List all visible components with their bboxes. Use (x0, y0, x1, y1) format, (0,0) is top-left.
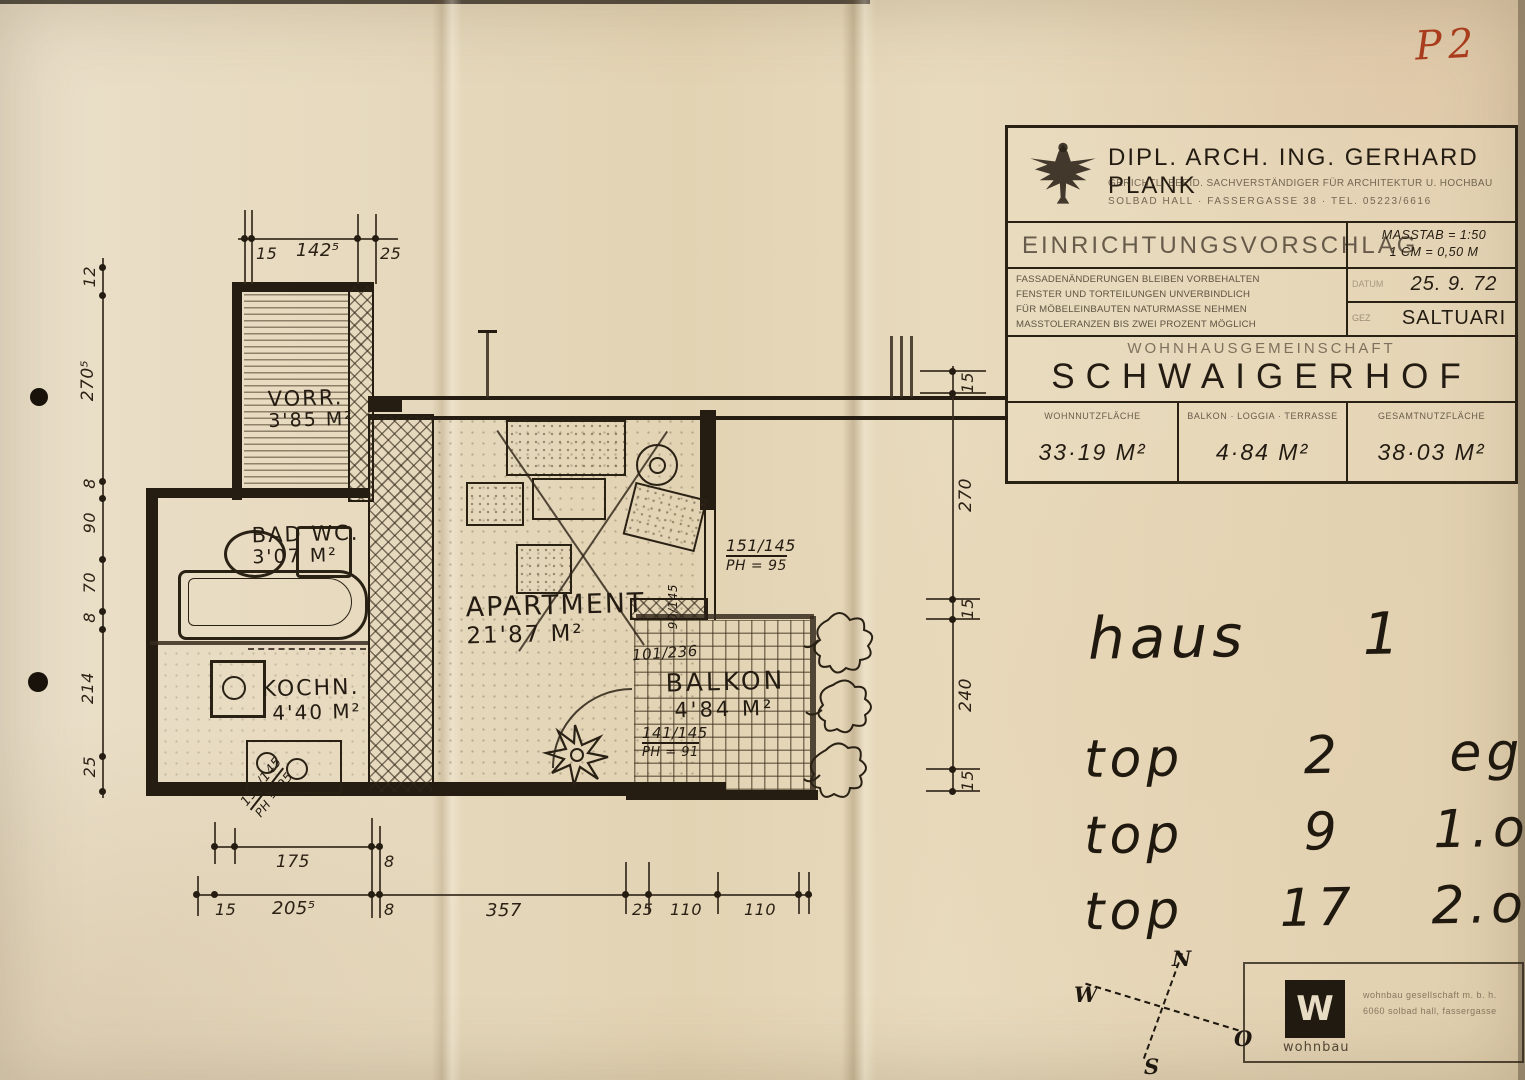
dim-right-2: 15 (958, 598, 977, 619)
dim-node (211, 891, 218, 898)
floor-lamp-inner (649, 457, 666, 474)
dim-node (949, 368, 956, 375)
notes-divider-h (1346, 301, 1515, 303)
dim-node (805, 891, 812, 898)
handwritten-top-row-1: top 2 eg. (1084, 722, 1525, 790)
note-line4: MASSTOLERANZEN BIS ZWEI PROZENT MÖGLICH (1016, 318, 1338, 333)
dim-bottom2-3: 357 (486, 900, 522, 921)
compass-north: N (1172, 946, 1191, 971)
gez-label: GEZ (1352, 313, 1371, 323)
haus-label: haus (1087, 602, 1247, 673)
annotation-window-151-size: 151/145 (726, 536, 796, 555)
punch-hole-top (30, 388, 48, 406)
top-num-3: 17 (1205, 878, 1356, 941)
wohnbau-logo: W (1285, 980, 1345, 1038)
top-num-2: 9 (1205, 802, 1342, 864)
wall-long-cap-left (368, 396, 402, 412)
area1-value: 33·19 M² (1008, 439, 1177, 466)
top-floor-1: eg. (1363, 722, 1525, 785)
haus-number: 1 (1270, 599, 1405, 669)
dim-guide-b4 (379, 826, 381, 918)
architect-name: DIPL. ARCH. ING. GERHARD PLANK (1108, 144, 1515, 200)
wohnbau-stamp-box: W wohnbau wohnbau gesellschaft m. b. h. … (1243, 962, 1524, 1063)
dim-node (645, 891, 652, 898)
wohnbau-address-line1: wohnbau gesellschaft m. b. h. (1363, 990, 1497, 1000)
dim-node (354, 235, 361, 242)
balkon-name: BALKON (665, 666, 785, 698)
dim-right-1: 270 (956, 478, 976, 512)
room-label-apartment: APARTMENT 21'87 M² (465, 588, 646, 650)
wohnbau-address-line2: 6060 solbad hall, fassergasse (1363, 1006, 1497, 1016)
dim-bottom2-6: 110 (744, 900, 776, 919)
punch-hole-bottom (28, 672, 48, 692)
dim-node (99, 626, 106, 633)
dim-node (99, 292, 106, 299)
room-label-balkon: BALKON 4'84 M² (665, 666, 786, 722)
dim-node (949, 390, 956, 397)
potted-plant (540, 715, 620, 795)
dim-node (949, 596, 956, 603)
dim-bottom2-5: 110 (670, 900, 702, 919)
scanned-floor-plan-sheet: P2 DIPL. ARCH. ING. GERHARD PLANK GERICH… (0, 0, 1525, 1080)
dim-guide-t3 (357, 214, 359, 284)
wohnbau-logo-letter: W (1296, 989, 1334, 1029)
wall-long-top (368, 396, 1008, 420)
annotation-window-151-ph: PH = 95 (726, 555, 787, 574)
page-mark: P2 (1414, 20, 1481, 69)
dim-bottom2-2: 8 (384, 900, 395, 919)
apartment-area: 21'87 M² (466, 619, 646, 650)
page-mark-text: P2 (1414, 20, 1481, 69)
balcony-slab-bottom (626, 790, 818, 800)
annotation-door-141: 141/145 PH = 91 (642, 724, 708, 760)
annotation-door-141-ph: PH = 91 (642, 742, 699, 760)
dim-node (949, 788, 956, 795)
dim-node (949, 766, 956, 773)
proposal-scale-divider (1346, 223, 1348, 267)
title-block-architect-row: DIPL. ARCH. ING. GERHARD PLANK GERICHTL.… (1008, 128, 1515, 223)
dim-node (714, 891, 721, 898)
dim-guide-b6 (625, 862, 627, 914)
top-num-1: 2 (1205, 726, 1342, 788)
dim-left-6: 214 (78, 672, 97, 704)
dim-top-2: 25 (380, 244, 401, 263)
top-word-3: top (1084, 881, 1185, 943)
dim-node (368, 843, 375, 850)
note-line3: FÜR MÖBELEINBAUTEN NATURMASSE NEHMEN (1016, 303, 1338, 318)
area1-label: WOHNNUTZFLÄCHE (1008, 411, 1177, 421)
dim-node (99, 264, 106, 271)
dim-top-1: 142⁵ (296, 240, 340, 261)
armchair-left (466, 482, 524, 526)
dim-guide-t4 (375, 214, 377, 284)
handwritten-haus: haus 1 (1087, 599, 1405, 673)
dim-node (193, 891, 200, 898)
wall-bad-kitchen-divider (150, 641, 368, 645)
fold-crease-right (842, 0, 876, 1080)
compass-west: W (1074, 982, 1098, 1007)
handwritten-top-row-3: top 17 2.og. (1084, 874, 1525, 943)
dim-bottom1-1: 8 (384, 852, 395, 871)
dim-node (211, 843, 218, 850)
dim-top-0: 15 (256, 244, 277, 263)
dim-line-left (102, 258, 104, 798)
dim-left-5: 8 (80, 612, 99, 623)
wall-vorr-left (232, 282, 242, 500)
wall-stub-chimney2 (900, 336, 903, 398)
area2-label: BALKON · LOGGIA · TERRASSE (1179, 411, 1346, 421)
area3-label: GESAMTNUTZFLÄCHE (1348, 411, 1515, 421)
kitchen-dashed-counter (248, 648, 366, 650)
room-label-vorraum: VORR. 3'85 M² (267, 385, 354, 433)
dim-bottom2-4: 25 (632, 900, 653, 919)
scale-line2: 1 CM = 0,50 M (1360, 245, 1508, 259)
dim-left-4: 70 (80, 572, 99, 593)
architect-line2: GERICHTL. BEEID. SACHVERSTÄNDIGER FÜR AR… (1108, 178, 1493, 189)
annotation-window-151: 151/145 PH = 95 (726, 536, 796, 574)
dim-node (99, 478, 106, 485)
dim-bottom2-1: 205⁵ (272, 898, 316, 919)
dim-guide-t2 (251, 210, 253, 284)
sheet-edge-top (0, 0, 870, 4)
title-block-proposal-row: EINRICHTUNGSVORSCHLAG MASSTAB = 1:50 1 C… (1008, 223, 1515, 269)
dim-bottom2-0: 15 (215, 900, 236, 919)
table (516, 544, 572, 594)
coffee-table (532, 478, 606, 520)
datum-value: 25. 9. 72 (1396, 273, 1512, 296)
dim-guide-t1 (244, 210, 246, 284)
dim-left-1: 270⁵ (78, 360, 98, 401)
room-label-bad: BAD WC. 3'07 M² (251, 521, 360, 570)
dim-node (372, 235, 379, 242)
dim-left-0: 12 (80, 266, 99, 287)
eagle-logo (1024, 134, 1102, 214)
bad-area: 3'07 M² (252, 545, 360, 570)
dim-node (99, 495, 106, 502)
dim-node (99, 788, 106, 795)
wohnbau-stamp-name: wohnbau (1283, 1040, 1350, 1055)
title-block-project-row: WOHNHAUSGEMEINSCHAFT SCHWAIGERHOF (1008, 337, 1515, 403)
top-word-2: top (1084, 805, 1185, 867)
apartment-name: APARTMENT (465, 588, 646, 624)
title-block-areas-row: WOHNNUTZFLÄCHE 33·19 M² BALKON · LOGGIA … (1008, 403, 1515, 481)
top-floor-2: 1.og. (1363, 798, 1525, 862)
community-label: WOHNHAUSGEMEINSCHAFT (1008, 340, 1515, 357)
compass-axis-wo (1085, 983, 1239, 1032)
notes: FASSADENÄNDERUNGEN BLEIBEN VORBEHALTEN F… (1016, 273, 1338, 332)
dim-node (99, 556, 106, 563)
dim-left-3: 90 (80, 512, 99, 533)
scale-line1: MASSTAB = 1:50 (1360, 228, 1508, 242)
wall-bad-top (146, 488, 370, 498)
bad-name: BAD WC. (251, 521, 359, 548)
title-block: DIPL. ARCH. ING. GERHARD PLANK GERICHTL.… (1005, 125, 1518, 484)
sofa (506, 420, 626, 476)
title-block-notes-row: FASSADENÄNDERUNGEN BLEIBEN VORBEHALTEN F… (1008, 269, 1515, 337)
dim-right-4: 15 (958, 770, 977, 791)
area3-value: 38·03 M² (1348, 439, 1515, 466)
vorraum-name: VORR. (267, 385, 353, 411)
dim-node (949, 616, 956, 623)
wall-stub-chimney1 (890, 336, 893, 398)
area2-value: 4·84 M² (1179, 439, 1346, 466)
top-word-1: top (1084, 728, 1185, 790)
wardrobe-column (368, 414, 434, 794)
datum-label: DATUM (1352, 279, 1383, 289)
dim-node (376, 891, 383, 898)
dim-node (376, 843, 383, 850)
bathtub-inner (188, 578, 352, 626)
project-name: SCHWAIGERHOF (1008, 357, 1515, 397)
dim-guide-b3 (371, 818, 373, 918)
wall-stub-antenna (486, 332, 489, 398)
handwritten-top-row-2: top 9 1.og. (1084, 798, 1525, 867)
note-line1: FASSADENÄNDERUNGEN BLEIBEN VORBEHALTEN (1016, 273, 1338, 288)
antenna-head (478, 330, 497, 333)
gez-value: SALTUARI (1396, 307, 1512, 330)
dim-left-7: 25 (80, 756, 99, 777)
balkon-area: 4'84 M² (666, 695, 786, 722)
dim-right-0: 15 (958, 372, 977, 393)
compass-rose: N W O S (1070, 944, 1270, 1076)
dim-left-2: 8 (80, 478, 99, 489)
top-floor-3: 2.og. (1377, 874, 1525, 938)
vorraum-area: 3'85 M² (268, 409, 354, 433)
wall-stub-chimney3 (910, 336, 913, 398)
compass-south: S (1144, 1054, 1159, 1079)
dim-node (795, 891, 802, 898)
room-label-kueche: KOCHN. 4'40 M² (261, 675, 362, 726)
annotation-vertical-window: 90/145 (666, 584, 680, 629)
dim-node (241, 235, 248, 242)
proposal-label: EINRICHTUNGSVORSCHLAG (1022, 232, 1418, 260)
dim-right-3: 240 (956, 678, 976, 712)
dim-node (622, 891, 629, 898)
wall-right-upper (700, 410, 716, 510)
dim-bottom1-0: 175 (276, 852, 310, 872)
dim-node (231, 843, 238, 850)
note-line2: FENSTER UND TORTEILUNGEN UNVERBINDLICH (1016, 288, 1338, 303)
kueche-area: 4'40 M² (262, 700, 362, 726)
dim-node (248, 235, 255, 242)
kitchen-sink-bowl (222, 676, 246, 700)
dim-node (368, 891, 375, 898)
dim-node (99, 753, 106, 760)
dim-node (99, 608, 106, 615)
balcony-plants (798, 600, 898, 815)
dim-line-right (952, 366, 954, 794)
architect-line3: SOLBAD HALL · FASSERGASSE 38 · TEL. 0522… (1108, 196, 1432, 207)
annotation-door-141-size: 141/145 (642, 724, 708, 742)
